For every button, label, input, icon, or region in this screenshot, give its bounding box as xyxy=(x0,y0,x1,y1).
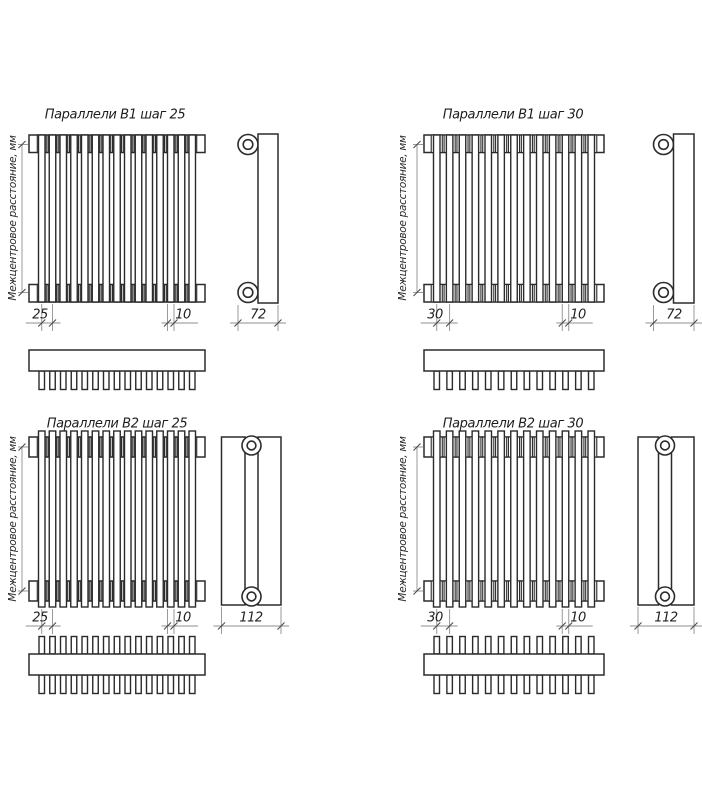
pitch-dimension-b1-step-25: 25 xyxy=(32,309,48,322)
depth-dimension-b2-step-30: 112 xyxy=(654,612,677,625)
side-view-b2-step-30 xyxy=(638,436,694,606)
top-view-b1-step-25 xyxy=(29,350,205,390)
tube-width-dimension-b1-step-30: 10 xyxy=(570,309,586,322)
side-view-b2-step-25 xyxy=(222,436,282,606)
depth-dimension-b2-step-25: 112 xyxy=(239,612,262,625)
axis-label-b2-step-25: Межцентровое расстояние, мм xyxy=(8,436,19,601)
front-view-b1-step-30 xyxy=(424,135,604,302)
axis-label-b1-step-25: Межцентровое расстояние, мм xyxy=(8,135,19,300)
side-view-b1-step-25 xyxy=(238,134,278,303)
pitch-dimension-b1-step-30: 30 xyxy=(427,309,443,322)
quadrant-b1-step-25 xyxy=(18,134,286,390)
quadrant-b2-step-30 xyxy=(413,431,702,694)
title-b1-step-30: Параллели В1 шаг 30 xyxy=(443,109,584,122)
pitch-dimension-b2-step-25: 25 xyxy=(32,612,48,625)
tube-width-dimension-b2-step-25: 10 xyxy=(175,612,191,625)
front-view-b1-step-25 xyxy=(29,135,205,302)
quadrant-b1-step-30 xyxy=(413,134,702,390)
title-b1-step-25: Параллели В1 шаг 25 xyxy=(45,109,186,122)
title-b2-step-25: Параллели В2 шаг 25 xyxy=(47,418,188,431)
title-b2-step-30: Параллели В2 шаг 30 xyxy=(443,418,584,431)
axis-label-b2-step-30: Межцентровое расстояние, мм xyxy=(398,436,409,601)
drawing-canvas: Параллели В1 шаг 25 Межцентровое расстоя… xyxy=(0,0,702,792)
axis-label-b1-step-30: Межцентровое расстояние, мм xyxy=(398,135,409,300)
depth-dimension-b1-step-25: 72 xyxy=(250,309,266,322)
quadrant-b2-step-25 xyxy=(18,431,289,694)
pitch-dimension-b2-step-30: 30 xyxy=(427,612,443,625)
front-view-b2-step-30 xyxy=(424,431,604,607)
side-view-b1-step-30 xyxy=(654,134,695,303)
tube-width-dimension-b1-step-25: 10 xyxy=(175,309,191,322)
front-view-b2-step-25 xyxy=(29,431,205,607)
top-view-b2-step-30 xyxy=(424,637,604,694)
tube-width-dimension-b2-step-30: 10 xyxy=(570,612,586,625)
top-view-b2-step-25 xyxy=(29,637,205,694)
depth-dimension-b1-step-30: 72 xyxy=(666,309,682,322)
top-view-b1-step-30 xyxy=(424,350,604,390)
